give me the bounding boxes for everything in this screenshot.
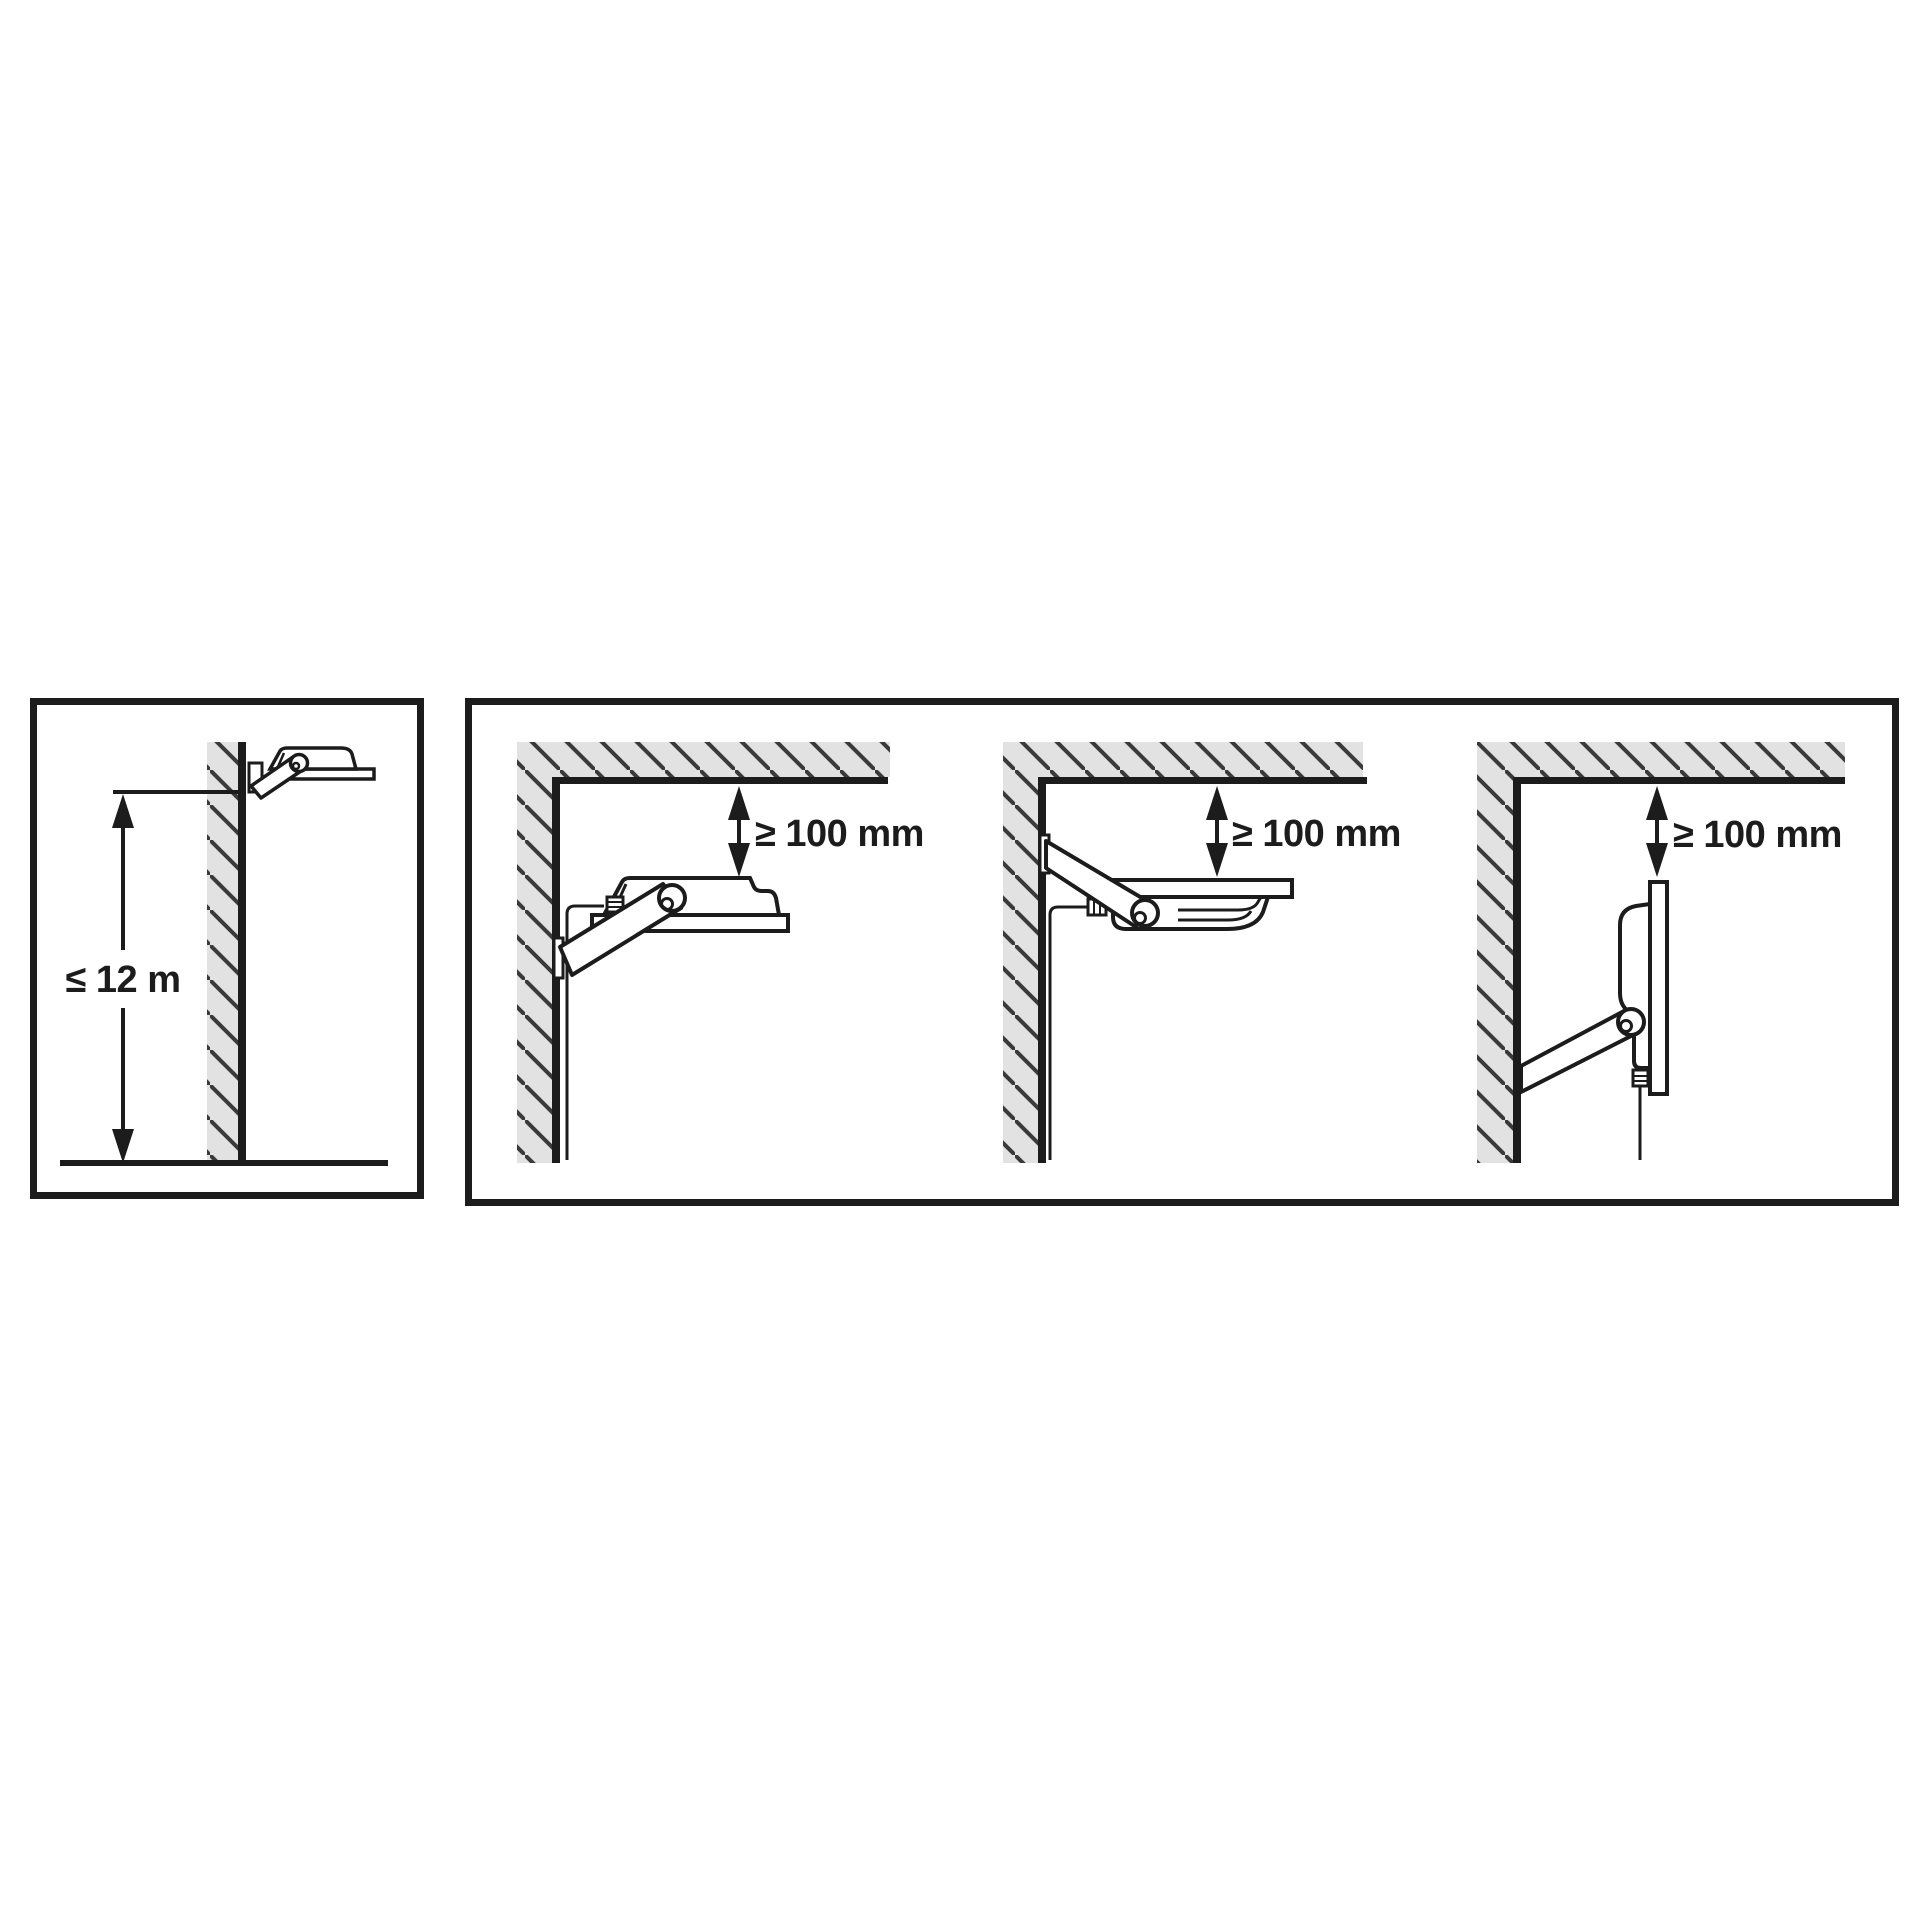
- wall-line: [238, 742, 246, 1163]
- wall-hatch: [517, 742, 552, 1163]
- ceiling-clearance-panel: ≥ 100 mm: [465, 698, 1899, 1206]
- floodlight-fixture: [249, 748, 374, 798]
- floodlight-fixture-vertical: [1521, 882, 1667, 1160]
- ceiling-line: [1513, 777, 1845, 784]
- max-height-panel: ≤ 12 m: [30, 698, 424, 1199]
- ceiling-hatch: [1477, 742, 1845, 777]
- arrowhead-down: [112, 1129, 134, 1163]
- clearance-diagram-2: ≥ 100 mm: [1003, 742, 1401, 1163]
- clearance-label: ≥ 100 mm: [755, 813, 924, 855]
- wall-hatch: [1003, 742, 1038, 1163]
- wall-hatch: [207, 742, 238, 1163]
- clearance-dimension-arrow: [1646, 786, 1668, 877]
- ground-line: [60, 1160, 388, 1166]
- wall-line: [1513, 777, 1521, 1163]
- clearance-dimension-arrow: [728, 786, 750, 877]
- cable-gland: [1633, 1070, 1648, 1086]
- clearance-dimension-arrow: [1206, 786, 1228, 877]
- arrowhead-up: [728, 786, 750, 820]
- ceiling-line: [1038, 777, 1367, 784]
- fixture-face-panel: [1650, 882, 1667, 1094]
- clearance-diagram-1: ≥ 100 mm: [517, 742, 924, 1163]
- ceiling-hatch: [1003, 742, 1363, 777]
- arrowhead-down: [1646, 843, 1668, 877]
- installation-instruction-sheet: { "colors": { "background": "#ffffff", "…: [0, 0, 1920, 1920]
- arrowhead-up: [112, 794, 134, 828]
- ceiling-clearance-diagrams: ≥ 100 mm: [472, 705, 1892, 1199]
- ceiling-hatch: [517, 742, 890, 777]
- floodlight-fixture-facing-down: [1040, 835, 1292, 1160]
- fixture-housing: [1620, 904, 1650, 1068]
- max-height-diagram: ≤ 12 m: [37, 705, 417, 1192]
- dimension-reference-line: [113, 790, 246, 794]
- power-cable: [1050, 907, 1090, 1160]
- floodlight-fixture-tilted-up: [554, 878, 788, 1160]
- arrowhead-up: [1206, 786, 1228, 820]
- arrowhead-down: [1206, 843, 1228, 877]
- clearance-label: ≥ 100 mm: [1232, 813, 1401, 855]
- arrowhead-down: [728, 843, 750, 877]
- clearance-label: ≥ 100 mm: [1673, 814, 1842, 856]
- ceiling-line: [552, 777, 888, 784]
- arrowhead-up: [1646, 786, 1668, 820]
- wall-hatch: [1477, 742, 1513, 1163]
- clearance-diagram-3: ≥ 100 mm: [1477, 742, 1845, 1163]
- max-height-label: ≤ 12 m: [65, 959, 180, 1001]
